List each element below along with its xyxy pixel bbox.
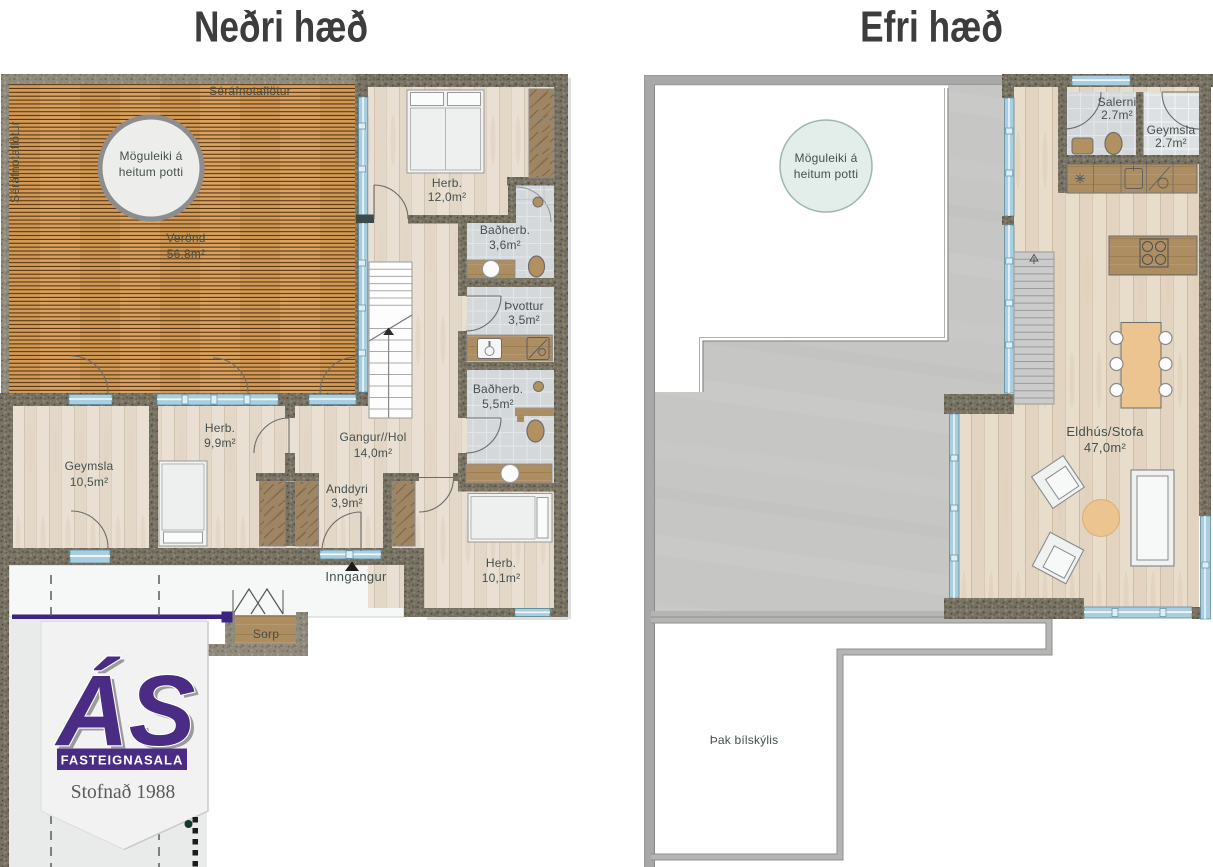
svg-text:9,9m²: 9,9m²	[204, 436, 236, 450]
svg-text:3,9m²: 3,9m²	[331, 496, 363, 510]
svg-text:Geymsla: Geymsla	[1147, 123, 1196, 137]
svg-text:Séráfnotaflötur: Séráfnotaflötur	[209, 84, 291, 98]
svg-text:Gangur//Hol: Gangur//Hol	[340, 430, 407, 444]
svg-text:12,0m²: 12,0m²	[428, 190, 467, 204]
svg-text:Baðherb.: Baðherb.	[480, 223, 530, 237]
svg-text:5,5m²: 5,5m²	[482, 397, 514, 411]
svg-text:10,1m²: 10,1m²	[482, 571, 521, 585]
svg-text:FASTEIGNASALA: FASTEIGNASALA	[61, 753, 184, 768]
svg-text:Verönd: Verönd	[166, 231, 205, 245]
svg-text:56,8m²: 56,8m²	[167, 247, 206, 261]
svg-text:Efri hæð: Efri hæð	[860, 3, 1003, 52]
svg-text:Möguleiki á: Möguleiki á	[120, 149, 183, 163]
svg-text:14,0m²: 14,0m²	[354, 446, 393, 460]
svg-text:Þvottur: Þvottur	[504, 299, 543, 313]
svg-text:Þak bílskýlis: Þak bílskýlis	[710, 733, 779, 747]
svg-text:Geymsla: Geymsla	[65, 459, 114, 473]
svg-text:3,5m²: 3,5m²	[508, 313, 540, 327]
svg-text:Sorp: Sorp	[253, 627, 279, 641]
svg-text:Anddyri: Anddyri	[326, 482, 368, 496]
svg-text:Herb.: Herb.	[432, 176, 462, 190]
svg-text:heitum potti: heitum potti	[119, 165, 183, 179]
svg-text:Séráfnotaflötur: Séráfnotaflötur	[8, 121, 22, 203]
svg-text:Inngangur: Inngangur	[325, 569, 387, 584]
svg-text:Stofnað 1988: Stofnað 1988	[71, 782, 176, 803]
svg-text:Baðherb.: Baðherb.	[473, 382, 523, 396]
svg-text:2.7m²: 2.7m²	[1155, 136, 1187, 150]
svg-text:Eldhús/Stofa: Eldhús/Stofa	[1066, 424, 1144, 439]
svg-text:Herb.: Herb.	[205, 421, 235, 435]
svg-text:10,5m²: 10,5m²	[70, 475, 109, 489]
svg-text:Neðri hæð: Neðri hæð	[194, 3, 368, 52]
svg-text:Möguleiki á: Möguleiki á	[795, 151, 858, 165]
svg-text:heitum potti: heitum potti	[794, 167, 858, 181]
svg-text:3,6m²: 3,6m²	[489, 238, 521, 252]
svg-text:Salerni: Salerni	[1098, 95, 1137, 109]
svg-text:47,0m²: 47,0m²	[1084, 440, 1127, 455]
svg-text:2.7m²: 2.7m²	[1101, 108, 1133, 122]
svg-text:Herb.: Herb.	[486, 556, 516, 570]
